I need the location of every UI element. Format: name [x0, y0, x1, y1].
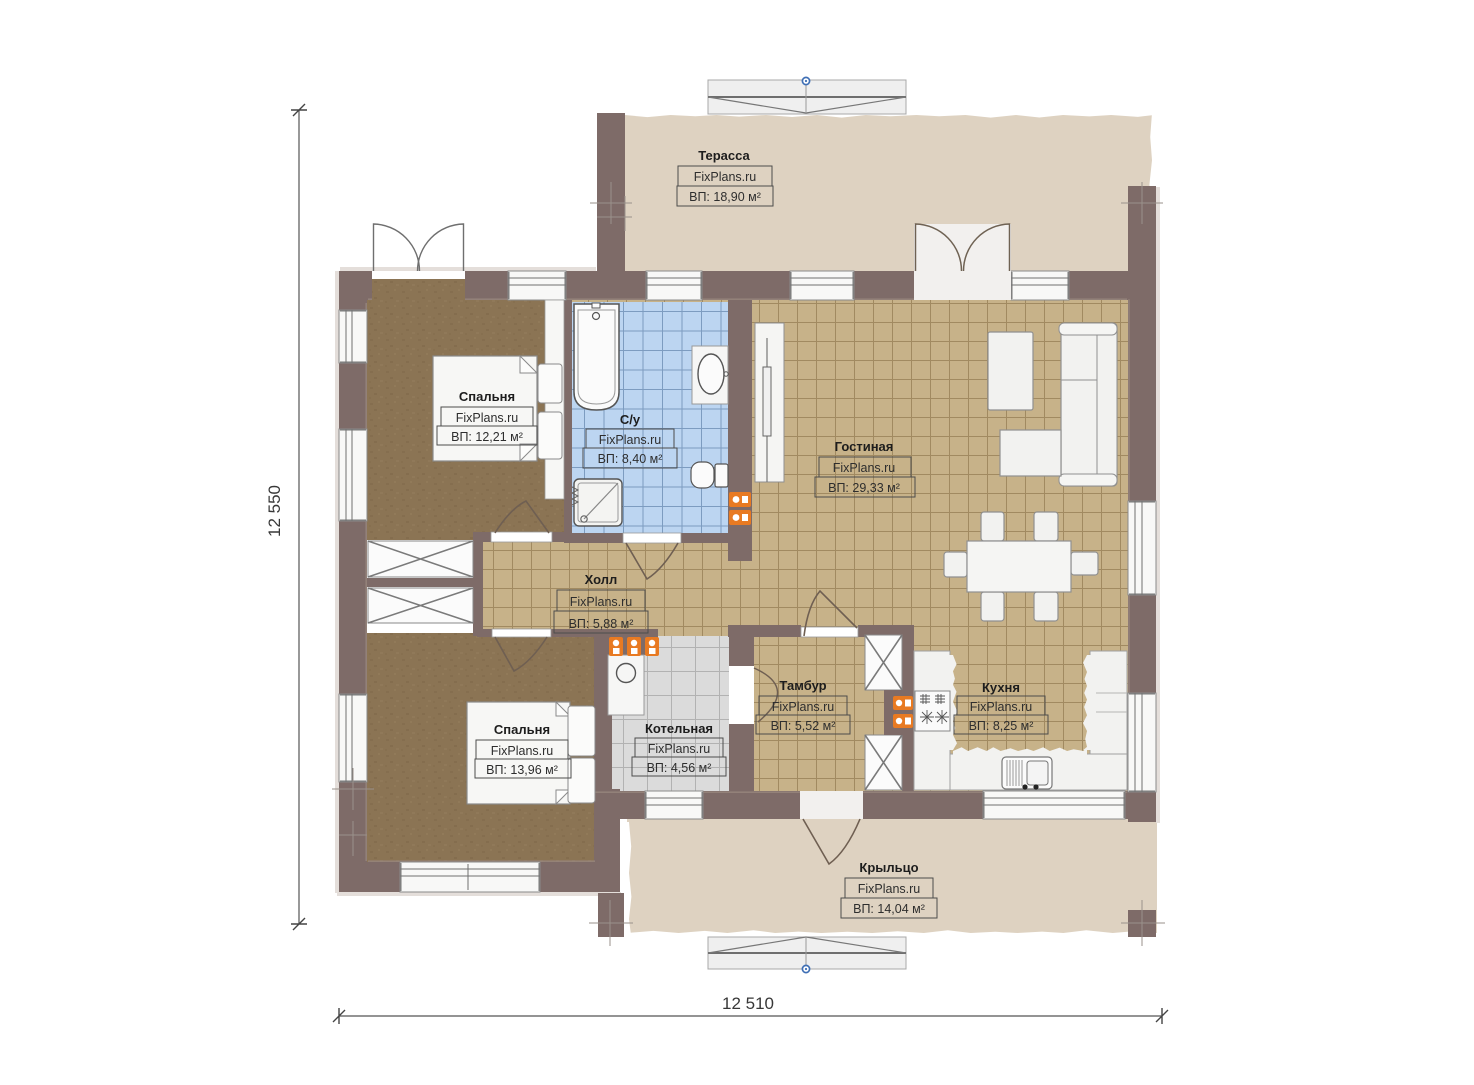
svg-text:ВП: 5,88 м²: ВП: 5,88 м² [569, 617, 634, 631]
svg-text:FixPlans.ru: FixPlans.ru [648, 742, 711, 756]
svg-text:Терасса: Терасса [698, 148, 750, 163]
svg-text:Спальня: Спальня [494, 722, 550, 737]
svg-text:ВП: 4,56 м²: ВП: 4,56 м² [647, 761, 712, 775]
svg-text:Крыльцо: Крыльцо [859, 860, 918, 875]
svg-text:ВП: 8,25 м²: ВП: 8,25 м² [969, 719, 1034, 733]
svg-text:ВП: 14,04 м²: ВП: 14,04 м² [853, 902, 925, 916]
svg-text:ВП: 13,96 м²: ВП: 13,96 м² [486, 763, 558, 777]
svg-text:FixPlans.ru: FixPlans.ru [970, 700, 1033, 714]
svg-text:12 550: 12 550 [265, 485, 284, 537]
svg-text:Котельная: Котельная [645, 721, 713, 736]
svg-text:12 510: 12 510 [722, 994, 774, 1013]
svg-text:Гостиная: Гостиная [835, 439, 894, 454]
svg-text:FixPlans.ru: FixPlans.ru [694, 170, 757, 184]
svg-text:Холл: Холл [585, 572, 618, 587]
svg-text:FixPlans.ru: FixPlans.ru [833, 461, 896, 475]
svg-text:Кухня: Кухня [982, 680, 1020, 695]
svg-text:FixPlans.ru: FixPlans.ru [772, 700, 835, 714]
svg-text:ВП: 18,90 м²: ВП: 18,90 м² [689, 190, 761, 204]
svg-text:ВП: 12,21 м²: ВП: 12,21 м² [451, 430, 523, 444]
svg-text:FixPlans.ru: FixPlans.ru [456, 411, 519, 425]
svg-text:FixPlans.ru: FixPlans.ru [491, 744, 554, 758]
svg-text:ВП: 29,33 м²: ВП: 29,33 м² [828, 481, 900, 495]
svg-text:FixPlans.ru: FixPlans.ru [599, 433, 662, 447]
svg-text:FixPlans.ru: FixPlans.ru [858, 882, 921, 896]
svg-text:ВП: 5,52 м²: ВП: 5,52 м² [771, 719, 836, 733]
svg-text:FixPlans.ru: FixPlans.ru [570, 595, 633, 609]
svg-text:С/у: С/у [620, 412, 641, 427]
svg-text:ВП: 8,40 м²: ВП: 8,40 м² [598, 452, 663, 466]
svg-text:Спальня: Спальня [459, 389, 515, 404]
svg-text:Тамбур: Тамбур [779, 678, 826, 693]
